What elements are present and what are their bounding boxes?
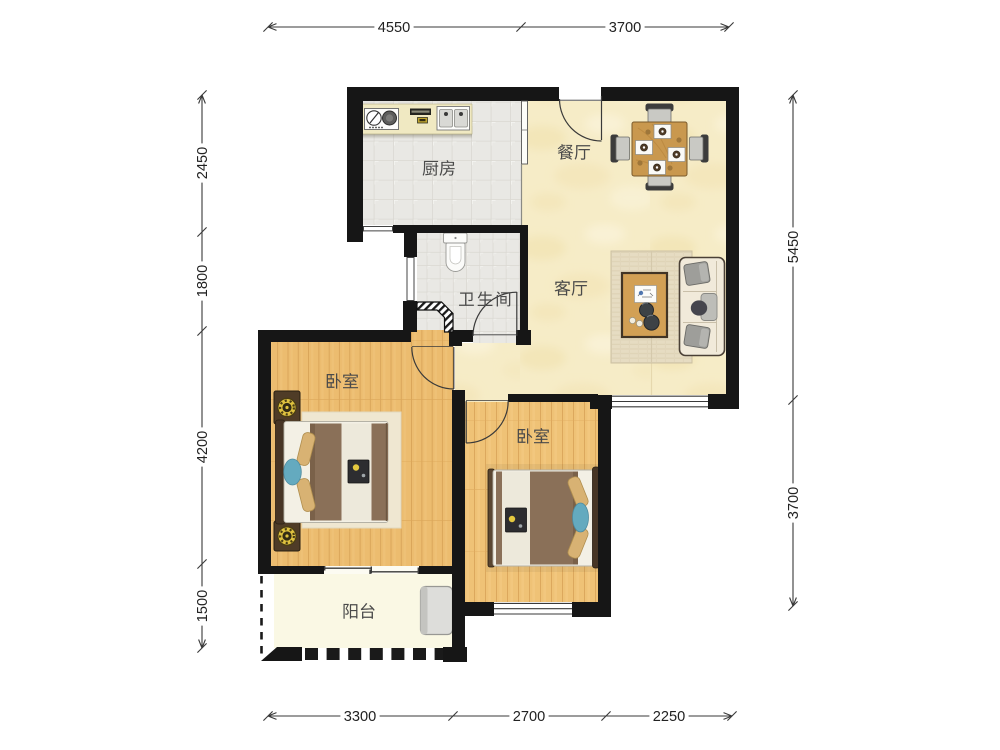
svg-text:1500: 1500	[195, 590, 211, 622]
svg-text:4550: 4550	[378, 20, 410, 36]
svg-text:2700: 2700	[513, 709, 545, 725]
svg-text:4200: 4200	[195, 431, 211, 463]
svg-text:5450: 5450	[786, 231, 802, 263]
svg-text:2250: 2250	[653, 709, 685, 725]
svg-text:2450: 2450	[195, 147, 211, 179]
svg-text:1800: 1800	[195, 265, 211, 297]
svg-text:3700: 3700	[609, 20, 641, 36]
svg-text:3700: 3700	[786, 487, 802, 519]
svg-text:3300: 3300	[344, 709, 376, 725]
